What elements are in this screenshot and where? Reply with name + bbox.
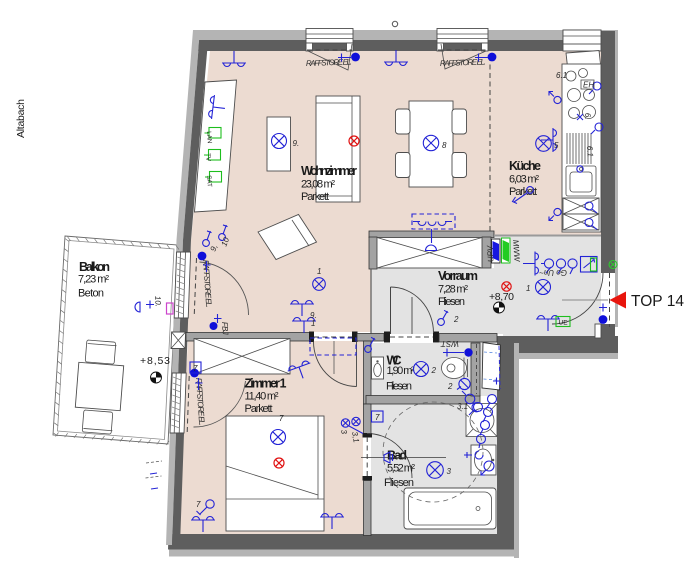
svg-text:6.1: 6.1 — [585, 146, 595, 158]
svg-text:WST: WST — [440, 339, 459, 348]
svg-text:EH: EH — [583, 81, 594, 90]
svg-text:5,52 m²: 5,52 m² — [387, 463, 415, 475]
svg-text:7: 7 — [196, 500, 201, 509]
svg-text:6.1: 6.1 — [556, 71, 567, 80]
svg-text:6.: 6. — [583, 113, 592, 120]
svg-text:3,1: 3,1 — [350, 431, 361, 444]
svg-text:Küche: Küche — [509, 159, 541, 173]
svg-text:UE: UE — [559, 320, 569, 327]
svg-text:8: 8 — [442, 141, 447, 150]
svg-text:3.1: 3.1 — [457, 402, 468, 411]
svg-text:Fliesen: Fliesen — [438, 296, 465, 308]
svg-text:Fliesen: Fliesen — [384, 477, 414, 489]
svg-text:RAFFSTORE EL.: RAFFSTORE EL. — [440, 57, 486, 68]
svg-text:9.: 9. — [293, 139, 300, 148]
svg-text:Parkett: Parkett — [245, 403, 273, 415]
svg-text:+8,70: +8,70 — [489, 291, 514, 303]
svg-text:TOP 14: TOP 14 — [631, 293, 684, 310]
svg-text:10.: 10. — [153, 296, 163, 308]
svg-text:Altabach: Altabach — [15, 99, 27, 138]
svg-text:MWW: MWW — [511, 240, 522, 264]
svg-text:TV: TV — [204, 153, 212, 162]
svg-text:7: 7 — [279, 414, 284, 423]
svg-text:1: 1 — [526, 284, 530, 293]
svg-text:11,40 m²: 11,40 m² — [245, 391, 279, 403]
svg-text:3: 3 — [447, 467, 452, 476]
svg-text:FBJ: FBJ — [220, 322, 230, 337]
svg-text:Go Un~: Go Un~ — [539, 268, 567, 277]
svg-text:Wohnzimmer: Wohnzimmer — [301, 164, 357, 178]
svg-text:2: 2 — [431, 366, 437, 375]
svg-text:5: 5 — [554, 141, 559, 150]
svg-text:2: 2 — [453, 315, 459, 324]
svg-text:1,90 m²: 1,90 m² — [387, 365, 415, 377]
svg-text:UPV: UPV — [485, 245, 495, 263]
svg-text:6,03 m²: 6,03 m² — [509, 174, 539, 186]
svg-text:7,28 m²: 7,28 m² — [438, 284, 468, 296]
svg-text:7: 7 — [193, 364, 198, 373]
svg-text:2: 2 — [447, 382, 453, 391]
svg-text:7,23 m²: 7,23 m² — [78, 274, 109, 286]
svg-text:Beton: Beton — [78, 288, 104, 300]
svg-text:Parkett: Parkett — [301, 191, 329, 203]
svg-text:Zimmer 1: Zimmer 1 — [245, 377, 287, 391]
svg-text:RAFFSTORE EL.: RAFFSTORE EL. — [306, 57, 352, 68]
svg-text:Balkon: Balkon — [79, 260, 110, 274]
svg-text:1: 1 — [317, 267, 321, 276]
svg-text:7: 7 — [375, 413, 380, 422]
svg-text:Vorraum: Vorraum — [438, 269, 478, 283]
svg-text:+8,53: +8,53 — [140, 355, 170, 367]
svg-text:Fliesen: Fliesen — [386, 381, 412, 393]
svg-text:23,08 m²: 23,08 m² — [301, 179, 335, 191]
svg-text:1: 1 — [311, 319, 315, 328]
